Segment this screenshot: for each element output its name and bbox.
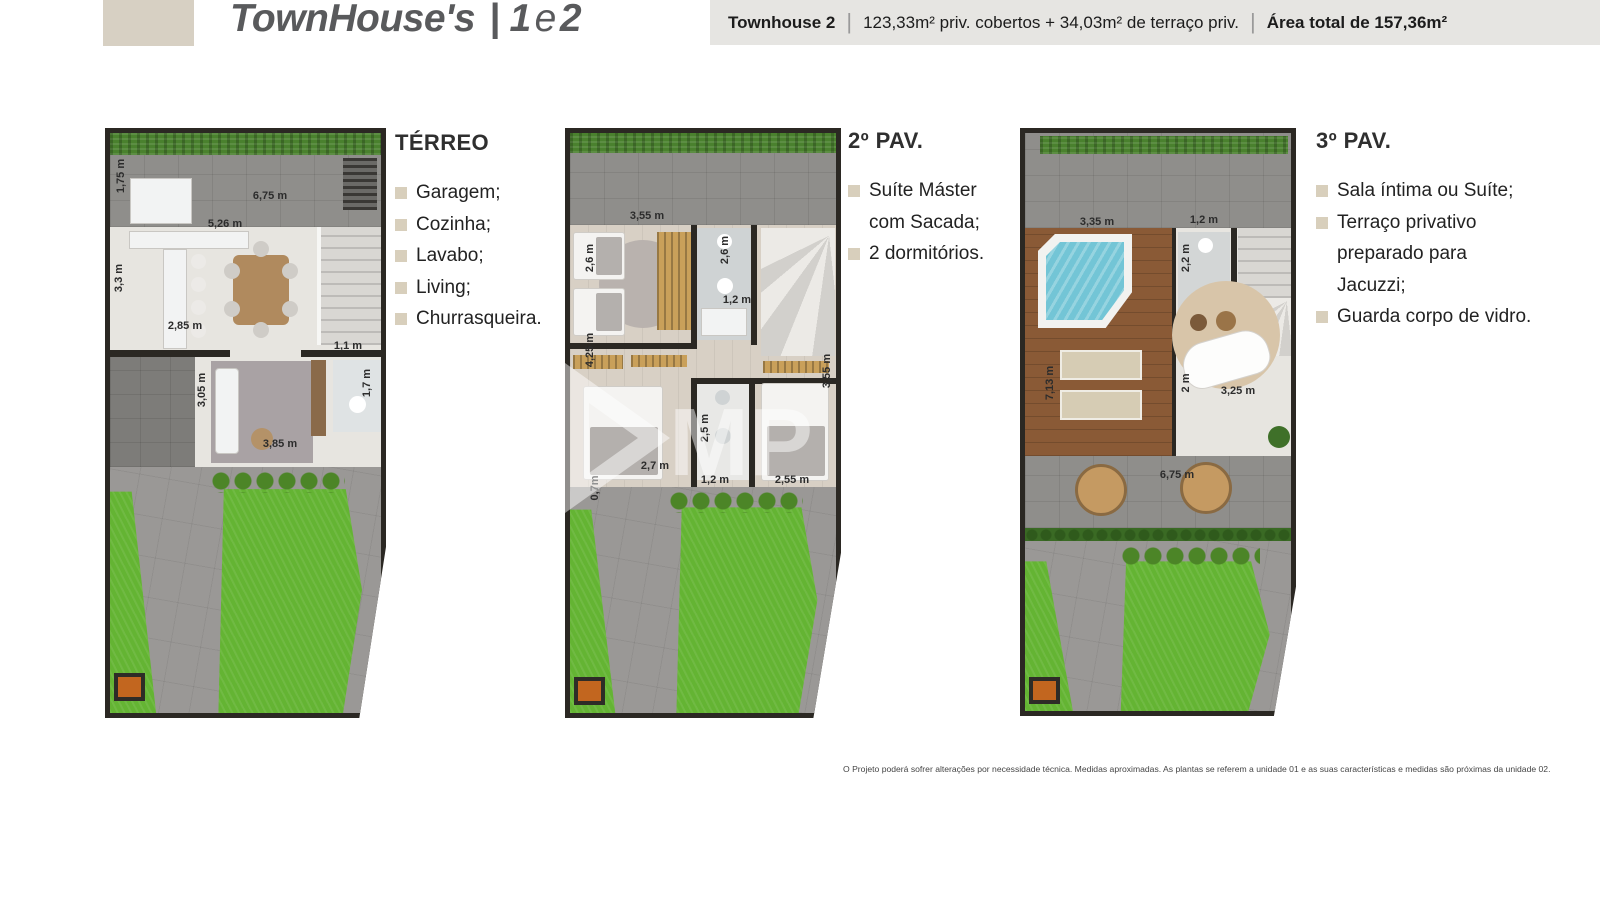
stool bbox=[191, 277, 206, 292]
garden-driveway bbox=[1025, 541, 1291, 711]
feature-label: Living; bbox=[416, 272, 566, 304]
list-item: Garagem; bbox=[395, 177, 575, 209]
floorplan-terreo: 1,75 m 6,75 m 5,26 m 3,3 m 2,85 m 3,05 m… bbox=[105, 128, 386, 718]
title-brand: TownHouse's bbox=[230, 0, 475, 40]
list-item: Guarda corpo de vidro. bbox=[1316, 301, 1546, 333]
side-table bbox=[1216, 311, 1236, 331]
dim-label: 1,1 m bbox=[334, 340, 362, 352]
dim-label: 1,2 m bbox=[1190, 214, 1218, 226]
feature-label: Sala íntima ou Suíte; bbox=[1337, 175, 1537, 207]
feature-label: Churrasqueira. bbox=[416, 303, 566, 335]
dim-label: 3,3 m bbox=[113, 264, 125, 292]
list-item: 2 dormitórios. bbox=[848, 238, 1018, 270]
sun-lounger bbox=[1060, 390, 1142, 420]
list-item: Lavabo; bbox=[395, 240, 575, 272]
hedge-strip bbox=[110, 133, 381, 155]
dining-table bbox=[233, 255, 289, 325]
feature-label: Lavabo; bbox=[416, 240, 566, 272]
list-item: Sala íntima ou Suíte; bbox=[1316, 175, 1546, 207]
sink bbox=[1198, 238, 1213, 253]
feature-label: Cozinha; bbox=[416, 209, 566, 241]
square-bullet-icon bbox=[1316, 311, 1328, 323]
bushes-row bbox=[210, 471, 345, 493]
square-bullet-icon bbox=[395, 219, 407, 231]
dim-label: 3,05 m bbox=[196, 373, 208, 407]
list-item: Cozinha; bbox=[395, 209, 575, 241]
feature-label: Garagem; bbox=[416, 177, 566, 209]
watermark-letters: MP bbox=[669, 389, 813, 496]
stool bbox=[191, 300, 206, 315]
feature-label: Suíte Máster com Sacada; bbox=[869, 175, 1001, 238]
terreo-feature-list: TÉRREO Garagem; Cozinha; Lavabo; Living;… bbox=[395, 130, 575, 335]
title-separator: | bbox=[475, 0, 509, 40]
garden-driveway bbox=[110, 467, 381, 713]
floorplan-2pav: MP 3,55 m 2,6 m 2,6 m 1,2 m 4,25 m 2,7 m… bbox=[565, 128, 841, 718]
kitchen-island bbox=[163, 249, 187, 349]
entry-mat bbox=[1029, 677, 1060, 704]
shower bbox=[701, 308, 747, 336]
list-item: Terraço privativo preparado para Jacuzzi… bbox=[1316, 207, 1546, 302]
wall bbox=[110, 350, 230, 357]
feature-label: Guarda corpo de vidro. bbox=[1337, 301, 1537, 333]
dim-label: 2,6 m bbox=[719, 236, 731, 264]
single-bed bbox=[573, 232, 625, 280]
disclaimer-text: O Projeto poderá sofrer alterações por n… bbox=[843, 764, 1543, 774]
dim-label: 6,75 m bbox=[1160, 469, 1194, 481]
floor-heading-terreo: TÉRREO bbox=[395, 130, 575, 156]
hedge-strip bbox=[1040, 136, 1288, 154]
dining-chair bbox=[282, 301, 298, 317]
sofa bbox=[215, 368, 239, 454]
dim-label: 2,85 m bbox=[168, 320, 202, 332]
bushes-row bbox=[1120, 546, 1260, 566]
square-bullet-icon bbox=[1316, 217, 1328, 229]
dining-chair bbox=[253, 322, 269, 338]
dim-label: 2,6 m bbox=[584, 244, 596, 272]
list-item: Churrasqueira. bbox=[395, 303, 575, 335]
round-table bbox=[1075, 464, 1127, 516]
banner-areas: 123,33m² priv. cobertos + 34,03m² de ter… bbox=[863, 13, 1239, 33]
dim-label: 3,35 m bbox=[1080, 216, 1114, 228]
toilet bbox=[349, 396, 366, 413]
title-conjunction: e bbox=[531, 0, 560, 40]
side-table bbox=[1190, 314, 1207, 331]
lower-terrace bbox=[1025, 456, 1291, 528]
dim-label: 3,25 m bbox=[1221, 385, 1255, 397]
plant bbox=[1268, 426, 1290, 448]
square-bullet-icon bbox=[395, 250, 407, 262]
feature-label: 2 dormitórios. bbox=[869, 238, 1001, 270]
single-bed bbox=[573, 288, 625, 336]
pav2-feature-list: 2º PAV. Suíte Máster com Sacada; 2 dormi… bbox=[848, 128, 1018, 270]
kitchen-counter bbox=[129, 231, 249, 249]
entry-mat bbox=[574, 677, 605, 705]
dim-label: 2,2 m bbox=[1180, 244, 1192, 272]
dim-label: 1,2 m bbox=[723, 294, 751, 306]
hedge-row bbox=[1025, 528, 1291, 541]
stairs bbox=[317, 227, 381, 345]
garage-storage bbox=[130, 178, 192, 224]
floor-heading-3pav: 3º PAV. bbox=[1316, 128, 1546, 154]
dining-chair bbox=[282, 263, 298, 279]
square-bullet-icon bbox=[848, 248, 860, 260]
brand-color-block bbox=[103, 0, 194, 46]
dining-chair bbox=[253, 241, 269, 257]
banner-total-area: Área total de 157,36m² bbox=[1267, 13, 1447, 33]
dining-chair bbox=[224, 263, 240, 279]
sun-lounger bbox=[1060, 350, 1142, 380]
banner-unit: Townhouse 2 bbox=[728, 13, 835, 33]
churrasqueira-cabinet bbox=[311, 360, 326, 436]
banner-divider: | bbox=[835, 9, 863, 35]
developer-watermark: MP bbox=[565, 353, 841, 523]
list-item: Suíte Máster com Sacada; bbox=[848, 175, 1018, 238]
square-bullet-icon bbox=[1316, 185, 1328, 197]
dim-label: 6,75 m bbox=[253, 190, 287, 202]
dim-label: 1,75 m bbox=[115, 159, 127, 193]
dim-label: 1,7 m bbox=[361, 369, 373, 397]
floor-heading-2pav: 2º PAV. bbox=[848, 128, 1018, 154]
dim-label: 5,26 m bbox=[208, 218, 242, 230]
pav3-feature-list: 3º PAV. Sala íntima ou Suíte; Terraço pr… bbox=[1316, 128, 1546, 333]
square-bullet-icon bbox=[395, 187, 407, 199]
square-bullet-icon bbox=[848, 185, 860, 197]
page-title: TownHouse's|1e2 bbox=[230, 0, 581, 47]
list-item: Living; bbox=[395, 272, 575, 304]
hedge-strip bbox=[570, 133, 836, 153]
stool bbox=[191, 254, 206, 269]
stairs bbox=[761, 228, 835, 356]
feature-label: Terraço privativo preparado para Jacuzzi… bbox=[1337, 207, 1537, 302]
square-bullet-icon bbox=[395, 313, 407, 325]
wardrobe bbox=[657, 232, 691, 330]
banner-divider: | bbox=[1239, 9, 1267, 35]
dim-label: 7,13 m bbox=[1044, 366, 1056, 400]
square-bullet-icon bbox=[395, 282, 407, 294]
toilet bbox=[717, 278, 733, 294]
side-patio bbox=[110, 357, 195, 467]
shelf-rack bbox=[343, 158, 377, 210]
terrace-area bbox=[570, 153, 836, 225]
wall bbox=[751, 225, 757, 345]
floorplan-3pav: 3,35 m 1,2 m 2,2 m 7,13 m 2 m 3,25 m 6,7… bbox=[1020, 128, 1296, 716]
dim-label: 3,85 m bbox=[263, 438, 297, 450]
dining-chair bbox=[224, 301, 240, 317]
title-number-1: 1 bbox=[509, 0, 530, 40]
unit-info-banner: Townhouse 2 | 123,33m² priv. cobertos + … bbox=[710, 0, 1600, 45]
dim-label: 2 m bbox=[1180, 374, 1192, 393]
title-number-2: 2 bbox=[560, 0, 581, 40]
entry-mat bbox=[114, 673, 145, 701]
dim-label: 3,55 m bbox=[630, 210, 664, 222]
